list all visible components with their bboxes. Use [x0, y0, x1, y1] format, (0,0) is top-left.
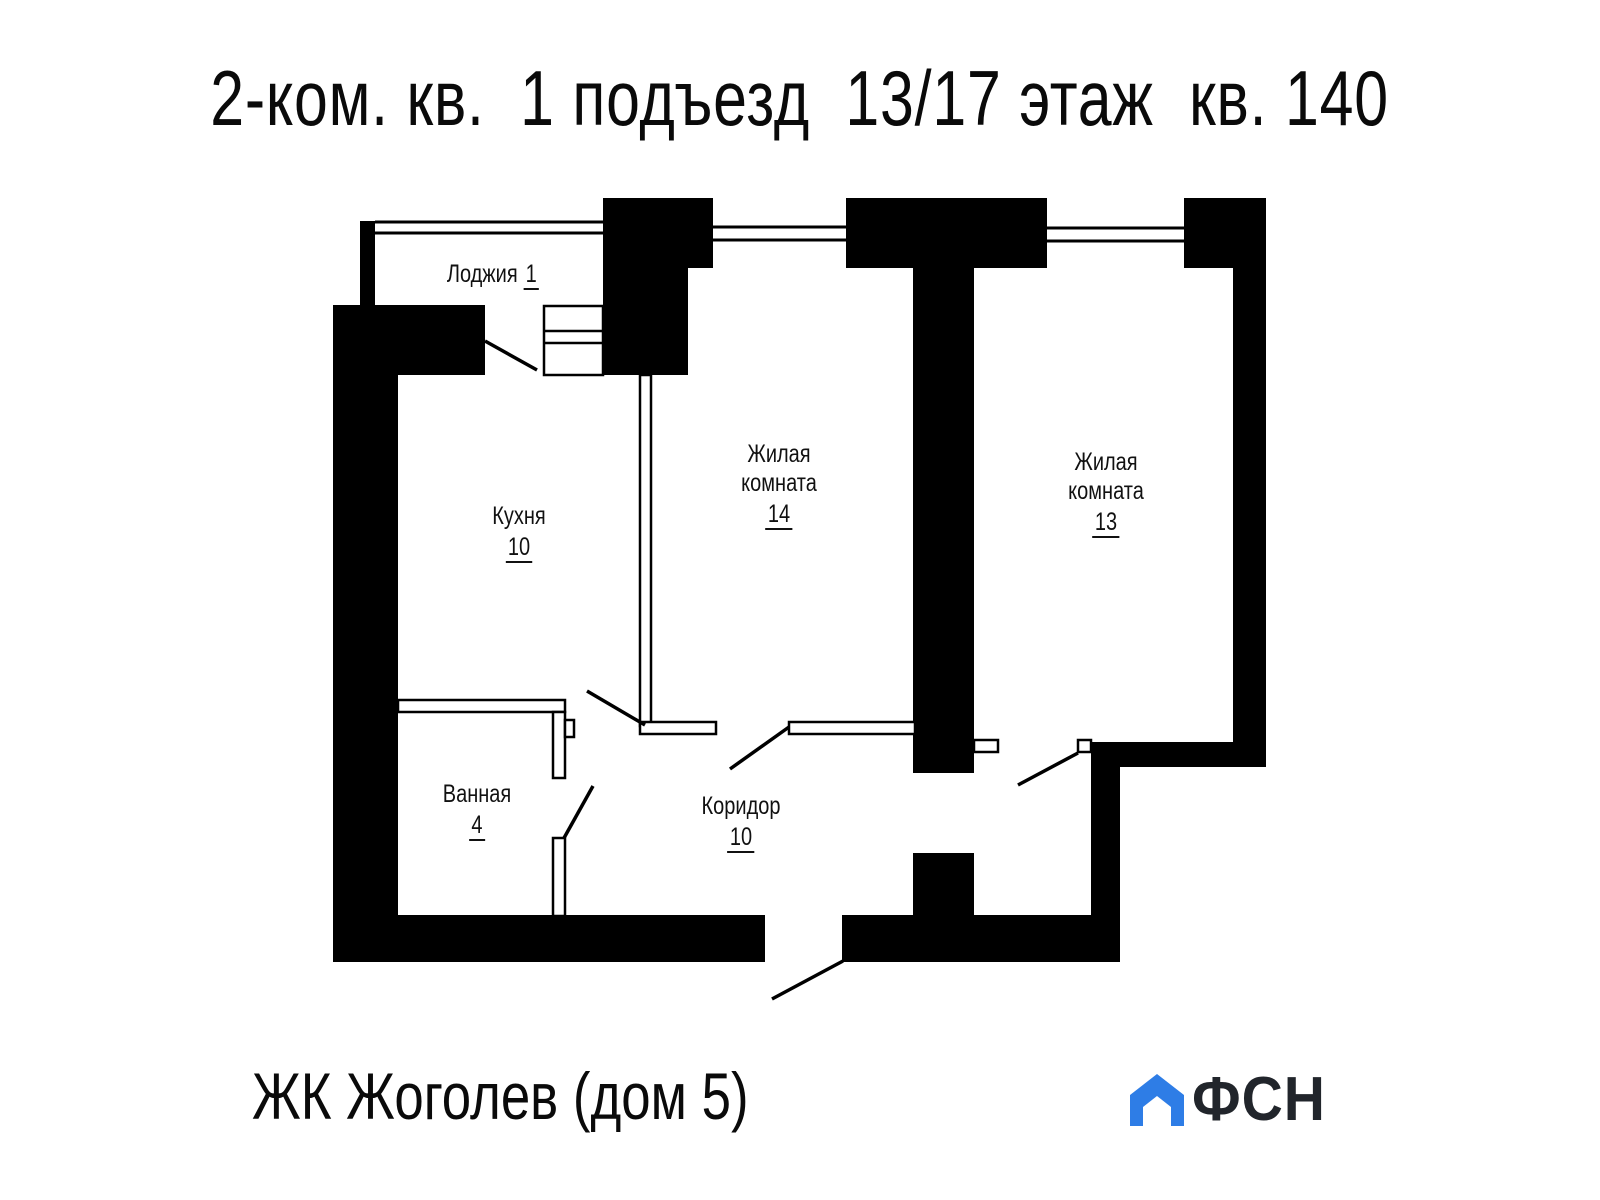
loggia-glazing-window [375, 222, 612, 233]
logo-house-icon [1130, 1074, 1184, 1126]
door-leaf-room14 [730, 727, 789, 769]
wall-block-northwest [603, 198, 688, 375]
room-name-room13-line1: Жилая [1068, 448, 1144, 477]
wall-central-column-lower [913, 853, 974, 915]
room-label-kitchen: Кухня 10 [486, 502, 553, 563]
room-name-bathroom: Ванная [443, 780, 512, 809]
floor-plan-page: 2-ком. кв. 1 подъезд 13/17 этаж кв. 140 [0, 0, 1600, 1200]
room-name-kitchen: Кухня [492, 502, 546, 531]
developer-logo: ФСН [1130, 1072, 1337, 1128]
door-leaf-bathroom [564, 786, 593, 838]
wall-loggia-left-stub [360, 221, 375, 305]
room-label-bathroom: Ванная 4 [434, 780, 520, 841]
window-room13 [1047, 228, 1184, 241]
room-area-kitchen: 10 [505, 534, 532, 563]
wall-left-outer [333, 305, 398, 962]
room-area-bathroom: 4 [469, 812, 485, 841]
partition-bathroom-bump [565, 720, 574, 737]
room-name-room14-line2: комната [741, 469, 817, 498]
partition-kitchen-foot [640, 722, 716, 734]
room-label-corridor: Коридор 10 [692, 792, 791, 853]
floor-plan-drawing [0, 0, 1600, 1200]
wall-top-mid-segment [846, 198, 1047, 268]
walls [333, 198, 1266, 962]
room-area-loggia: 1 [523, 261, 539, 290]
room-name-corridor: Коридор [702, 792, 781, 821]
room-label-loggia: Лоджия 1 [435, 260, 550, 290]
room-label-room14: Жилая комната 14 [732, 440, 827, 530]
wall-right-outer [1233, 198, 1266, 767]
door-leaf-room13 [1018, 753, 1078, 785]
door-leaf-kitchen [587, 691, 645, 725]
door13-jamb-left [974, 740, 998, 752]
partition-bathroom-right-upper [553, 712, 565, 778]
partition-bathroom-right-lower [553, 838, 565, 916]
logo-text: ФСН [1192, 1072, 1326, 1128]
partition-bathroom-top [398, 700, 565, 712]
door13-jamb-right [1078, 740, 1091, 752]
partition-kitchen-room14 [640, 375, 651, 726]
room-label-room13: Жилая комната 13 [1059, 448, 1154, 538]
room-area-corridor: 10 [727, 824, 754, 853]
project-name: ЖК Жоголев (дом 5) [252, 1062, 873, 1131]
room-name-room14-line1: Жилая [741, 440, 817, 469]
room-area-room14: 14 [765, 501, 792, 530]
wall-loggia-south [340, 305, 485, 375]
wall-corridor-right [1091, 742, 1120, 922]
room-name-loggia: Лоджия 1 [447, 260, 539, 290]
wall-bottom-right [842, 915, 1120, 962]
balcony-window-unit [544, 306, 603, 375]
wall-central-column [913, 267, 974, 773]
partition-corridor-top [789, 722, 915, 734]
window-room14 [712, 227, 846, 240]
door-leaf-loggia [485, 341, 537, 370]
room-area-room13: 13 [1092, 509, 1119, 538]
door-leaf-entrance [772, 961, 843, 999]
project-name-text: ЖК Жоголев (дом 5) [252, 1062, 749, 1131]
windows [375, 222, 1184, 241]
room-name-room13-line2: комната [1068, 477, 1144, 506]
